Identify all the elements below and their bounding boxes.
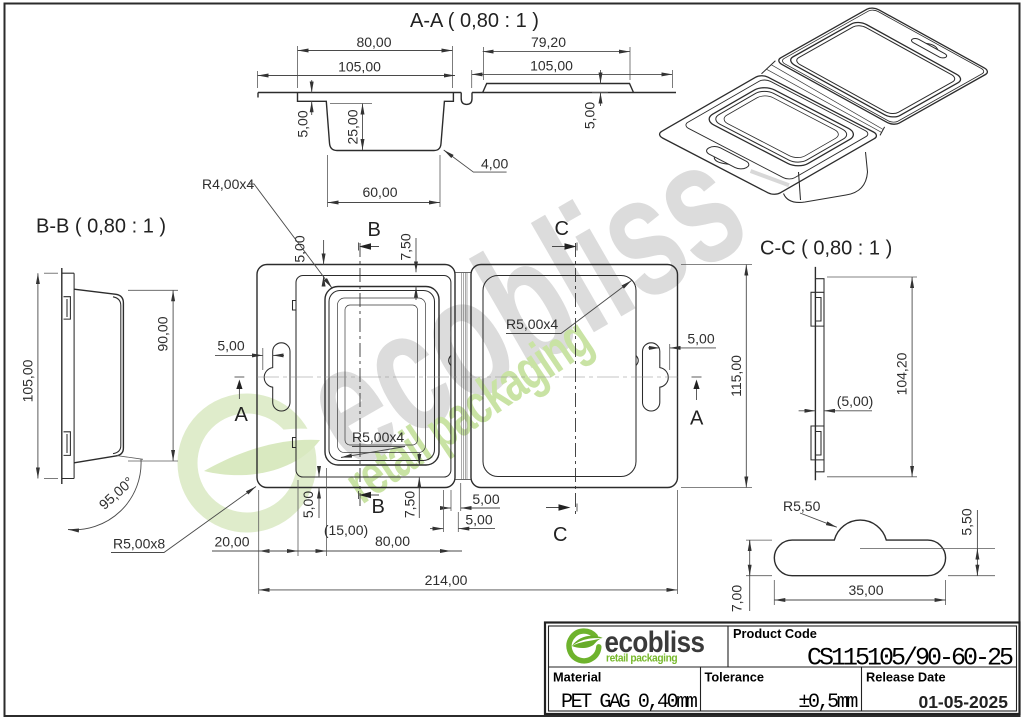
svg-text:105,00: 105,00	[530, 58, 573, 74]
svg-text:Product Code: Product Code	[733, 626, 817, 641]
svg-text:7,00: 7,00	[729, 585, 745, 612]
svg-text:35,00: 35,00	[848, 582, 883, 598]
svg-text:C-C ( 0,80 : 1 ): C-C ( 0,80 : 1 )	[760, 238, 892, 260]
svg-text:105,00: 105,00	[338, 59, 381, 75]
svg-text:80,00: 80,00	[356, 34, 391, 50]
svg-text:79,20: 79,20	[531, 34, 566, 50]
svg-text:5,00: 5,00	[582, 102, 598, 129]
svg-text:A: A	[235, 404, 249, 426]
svg-text:105,00: 105,00	[20, 359, 36, 402]
svg-text:R5,50: R5,50	[783, 498, 821, 514]
svg-text:retail packaging: retail packaging	[606, 652, 677, 665]
svg-text:(15,00): (15,00)	[324, 522, 368, 538]
svg-text:7,50: 7,50	[402, 491, 418, 518]
svg-text:5,00: 5,00	[295, 110, 311, 137]
svg-text:20,00: 20,00	[214, 534, 249, 550]
svg-text:ecobliss: ecobliss	[271, 104, 772, 506]
svg-text:Release Date: Release Date	[866, 670, 946, 685]
svg-text:B-B ( 0,80 : 1 ): B-B ( 0,80 : 1 )	[36, 216, 166, 238]
svg-text:(5,00): (5,00)	[837, 393, 874, 409]
svg-text:Tolerance: Tolerance	[705, 670, 765, 685]
svg-text:60,00: 60,00	[362, 184, 397, 200]
svg-text:±0,5mm: ±0,5mm	[798, 691, 857, 714]
svg-text:5,50: 5,50	[959, 508, 975, 535]
svg-text:115,00: 115,00	[728, 355, 744, 397]
svg-text:4,00: 4,00	[481, 156, 508, 172]
svg-text:5,00: 5,00	[472, 491, 499, 507]
svg-text:A: A	[690, 408, 704, 430]
svg-text:25,00: 25,00	[345, 109, 361, 144]
svg-text:R5,00x4: R5,00x4	[352, 429, 404, 445]
svg-text:5,00: 5,00	[687, 331, 714, 347]
svg-text:R5,00x8: R5,00x8	[113, 536, 165, 552]
svg-text:95,00°: 95,00°	[96, 473, 137, 512]
svg-text:80,00: 80,00	[375, 533, 410, 549]
svg-text:R4,00x4: R4,00x4	[202, 176, 254, 192]
svg-text:C: C	[555, 218, 569, 240]
svg-text:CS115105/90-60-25: CS115105/90-60-25	[807, 644, 1013, 673]
svg-text:90,00: 90,00	[155, 316, 171, 351]
svg-text:5,00: 5,00	[465, 512, 492, 528]
svg-text:R5,00x4: R5,00x4	[506, 316, 558, 332]
svg-text:104,20: 104,20	[894, 352, 910, 395]
svg-text:01-05-2025: 01-05-2025	[918, 692, 1008, 712]
svg-text:7,50: 7,50	[398, 233, 414, 260]
svg-text:5,00: 5,00	[217, 338, 244, 354]
svg-text:B: B	[368, 219, 381, 241]
svg-text:214,00: 214,00	[425, 572, 468, 588]
svg-text:5,00: 5,00	[292, 235, 308, 262]
svg-text:5,00: 5,00	[300, 491, 316, 518]
svg-text:C: C	[553, 524, 567, 546]
svg-text:B: B	[372, 496, 385, 518]
svg-text:A-A ( 0,80 : 1 ): A-A ( 0,80 : 1 )	[410, 10, 539, 32]
svg-text:PET GAG 0,40mm: PET GAG 0,40mm	[561, 691, 697, 714]
svg-text:Material: Material	[553, 670, 601, 685]
